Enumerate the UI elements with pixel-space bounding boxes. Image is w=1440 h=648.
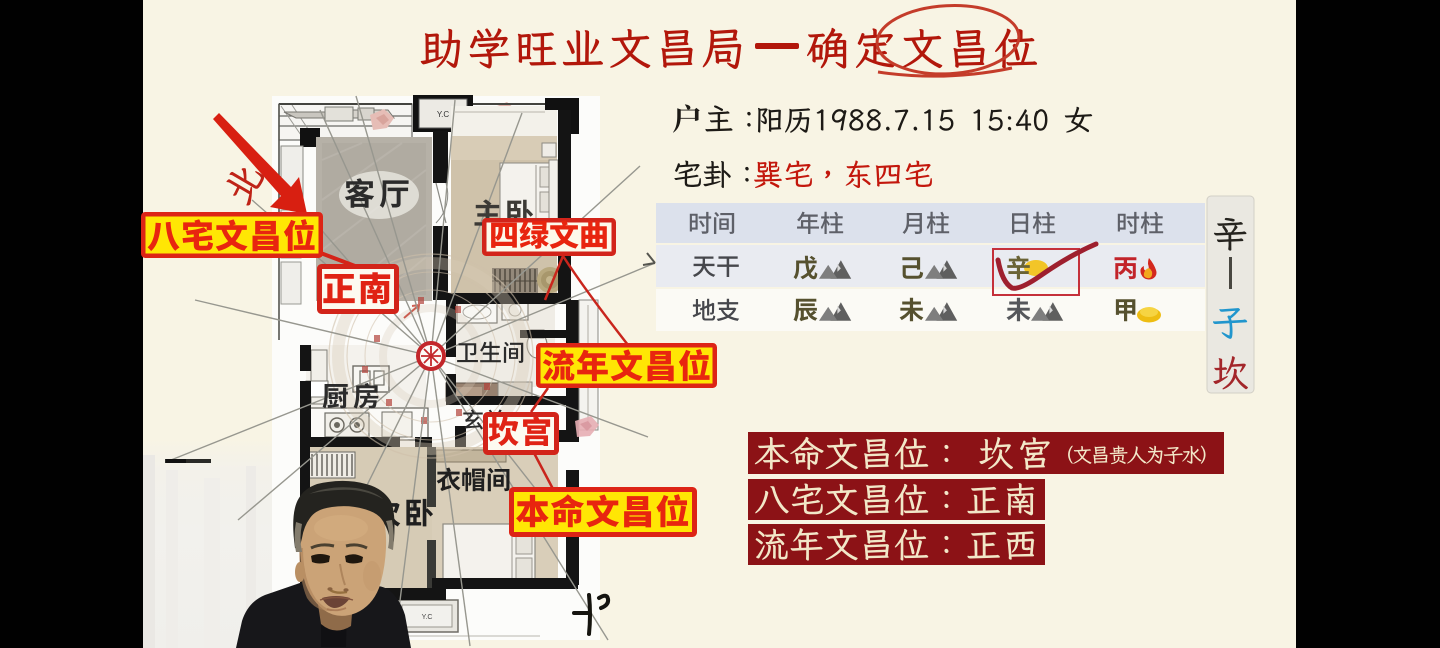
svg-text:Y.C: Y.C <box>422 614 433 621</box>
svg-text:Y.C: Y.C <box>437 110 450 119</box>
